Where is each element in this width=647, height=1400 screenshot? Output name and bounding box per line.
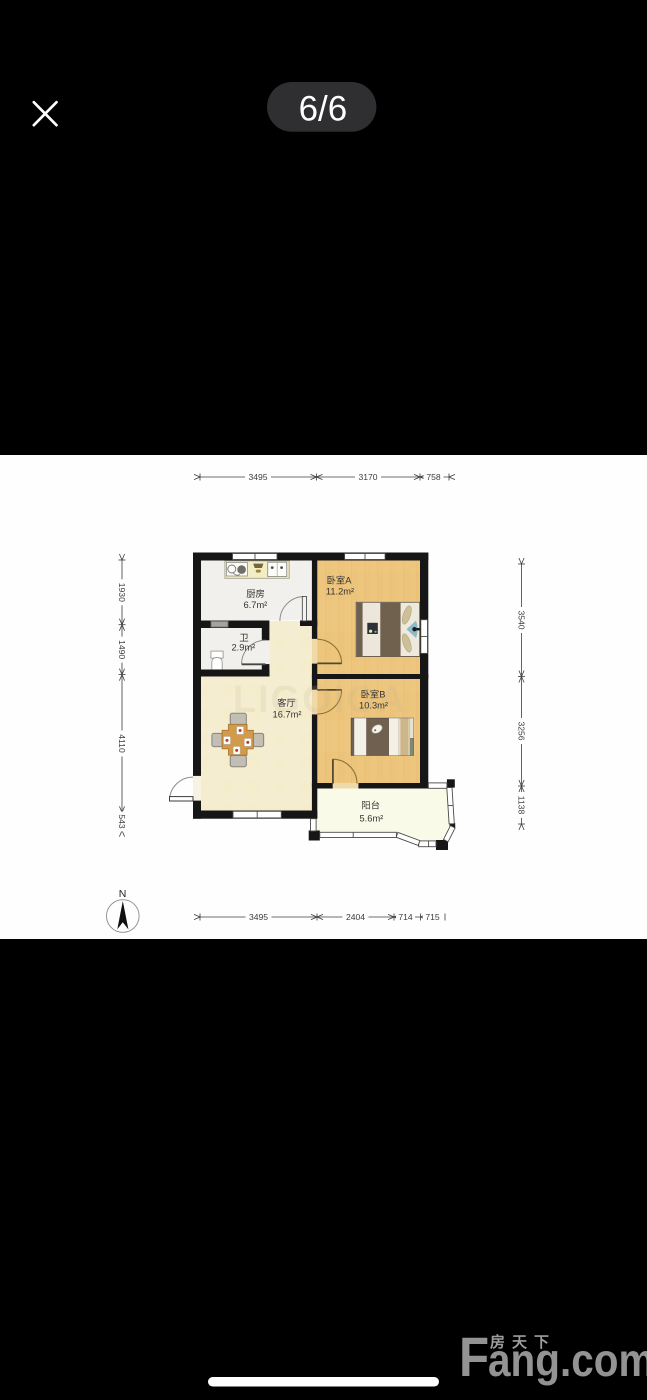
svg-text:6/6: 6/6 — [299, 89, 348, 128]
svg-text:3256: 3256 — [517, 721, 527, 740]
svg-text:3170: 3170 — [358, 472, 377, 482]
svg-text:4110: 4110 — [117, 734, 127, 753]
svg-text:3495: 3495 — [248, 472, 267, 482]
svg-text:1490: 1490 — [117, 640, 127, 659]
svg-text:16.7m²: 16.7m² — [273, 709, 302, 719]
svg-text:10.3m²: 10.3m² — [359, 700, 388, 710]
svg-text:F: F — [459, 1326, 489, 1389]
svg-text:5.6m²: 5.6m² — [360, 814, 384, 824]
svg-text:3540: 3540 — [517, 610, 527, 629]
svg-text:N: N — [119, 888, 127, 900]
svg-text:卫: 卫 — [239, 633, 248, 643]
svg-text:ang.com: ang.com — [488, 1336, 647, 1387]
svg-text:2.9m²: 2.9m² — [232, 642, 256, 652]
svg-text:714: 714 — [398, 912, 413, 922]
svg-text:卧室B: 卧室B — [361, 688, 386, 699]
svg-text:卧室A: 卧室A — [327, 574, 353, 585]
svg-text:715: 715 — [425, 912, 440, 922]
svg-text:3495: 3495 — [249, 912, 268, 922]
svg-text:6.7m²: 6.7m² — [244, 600, 268, 610]
svg-text:厨房: 厨房 — [246, 588, 265, 599]
svg-text:543: 543 — [117, 814, 127, 829]
svg-text:阳台: 阳台 — [361, 800, 380, 811]
svg-text:1930: 1930 — [117, 583, 127, 602]
svg-text:11.2m²: 11.2m² — [326, 586, 354, 596]
svg-text:2404: 2404 — [346, 912, 365, 922]
svg-text:客厅: 客厅 — [277, 697, 296, 708]
svg-text:758: 758 — [426, 472, 441, 482]
svg-text:1138: 1138 — [517, 796, 527, 815]
